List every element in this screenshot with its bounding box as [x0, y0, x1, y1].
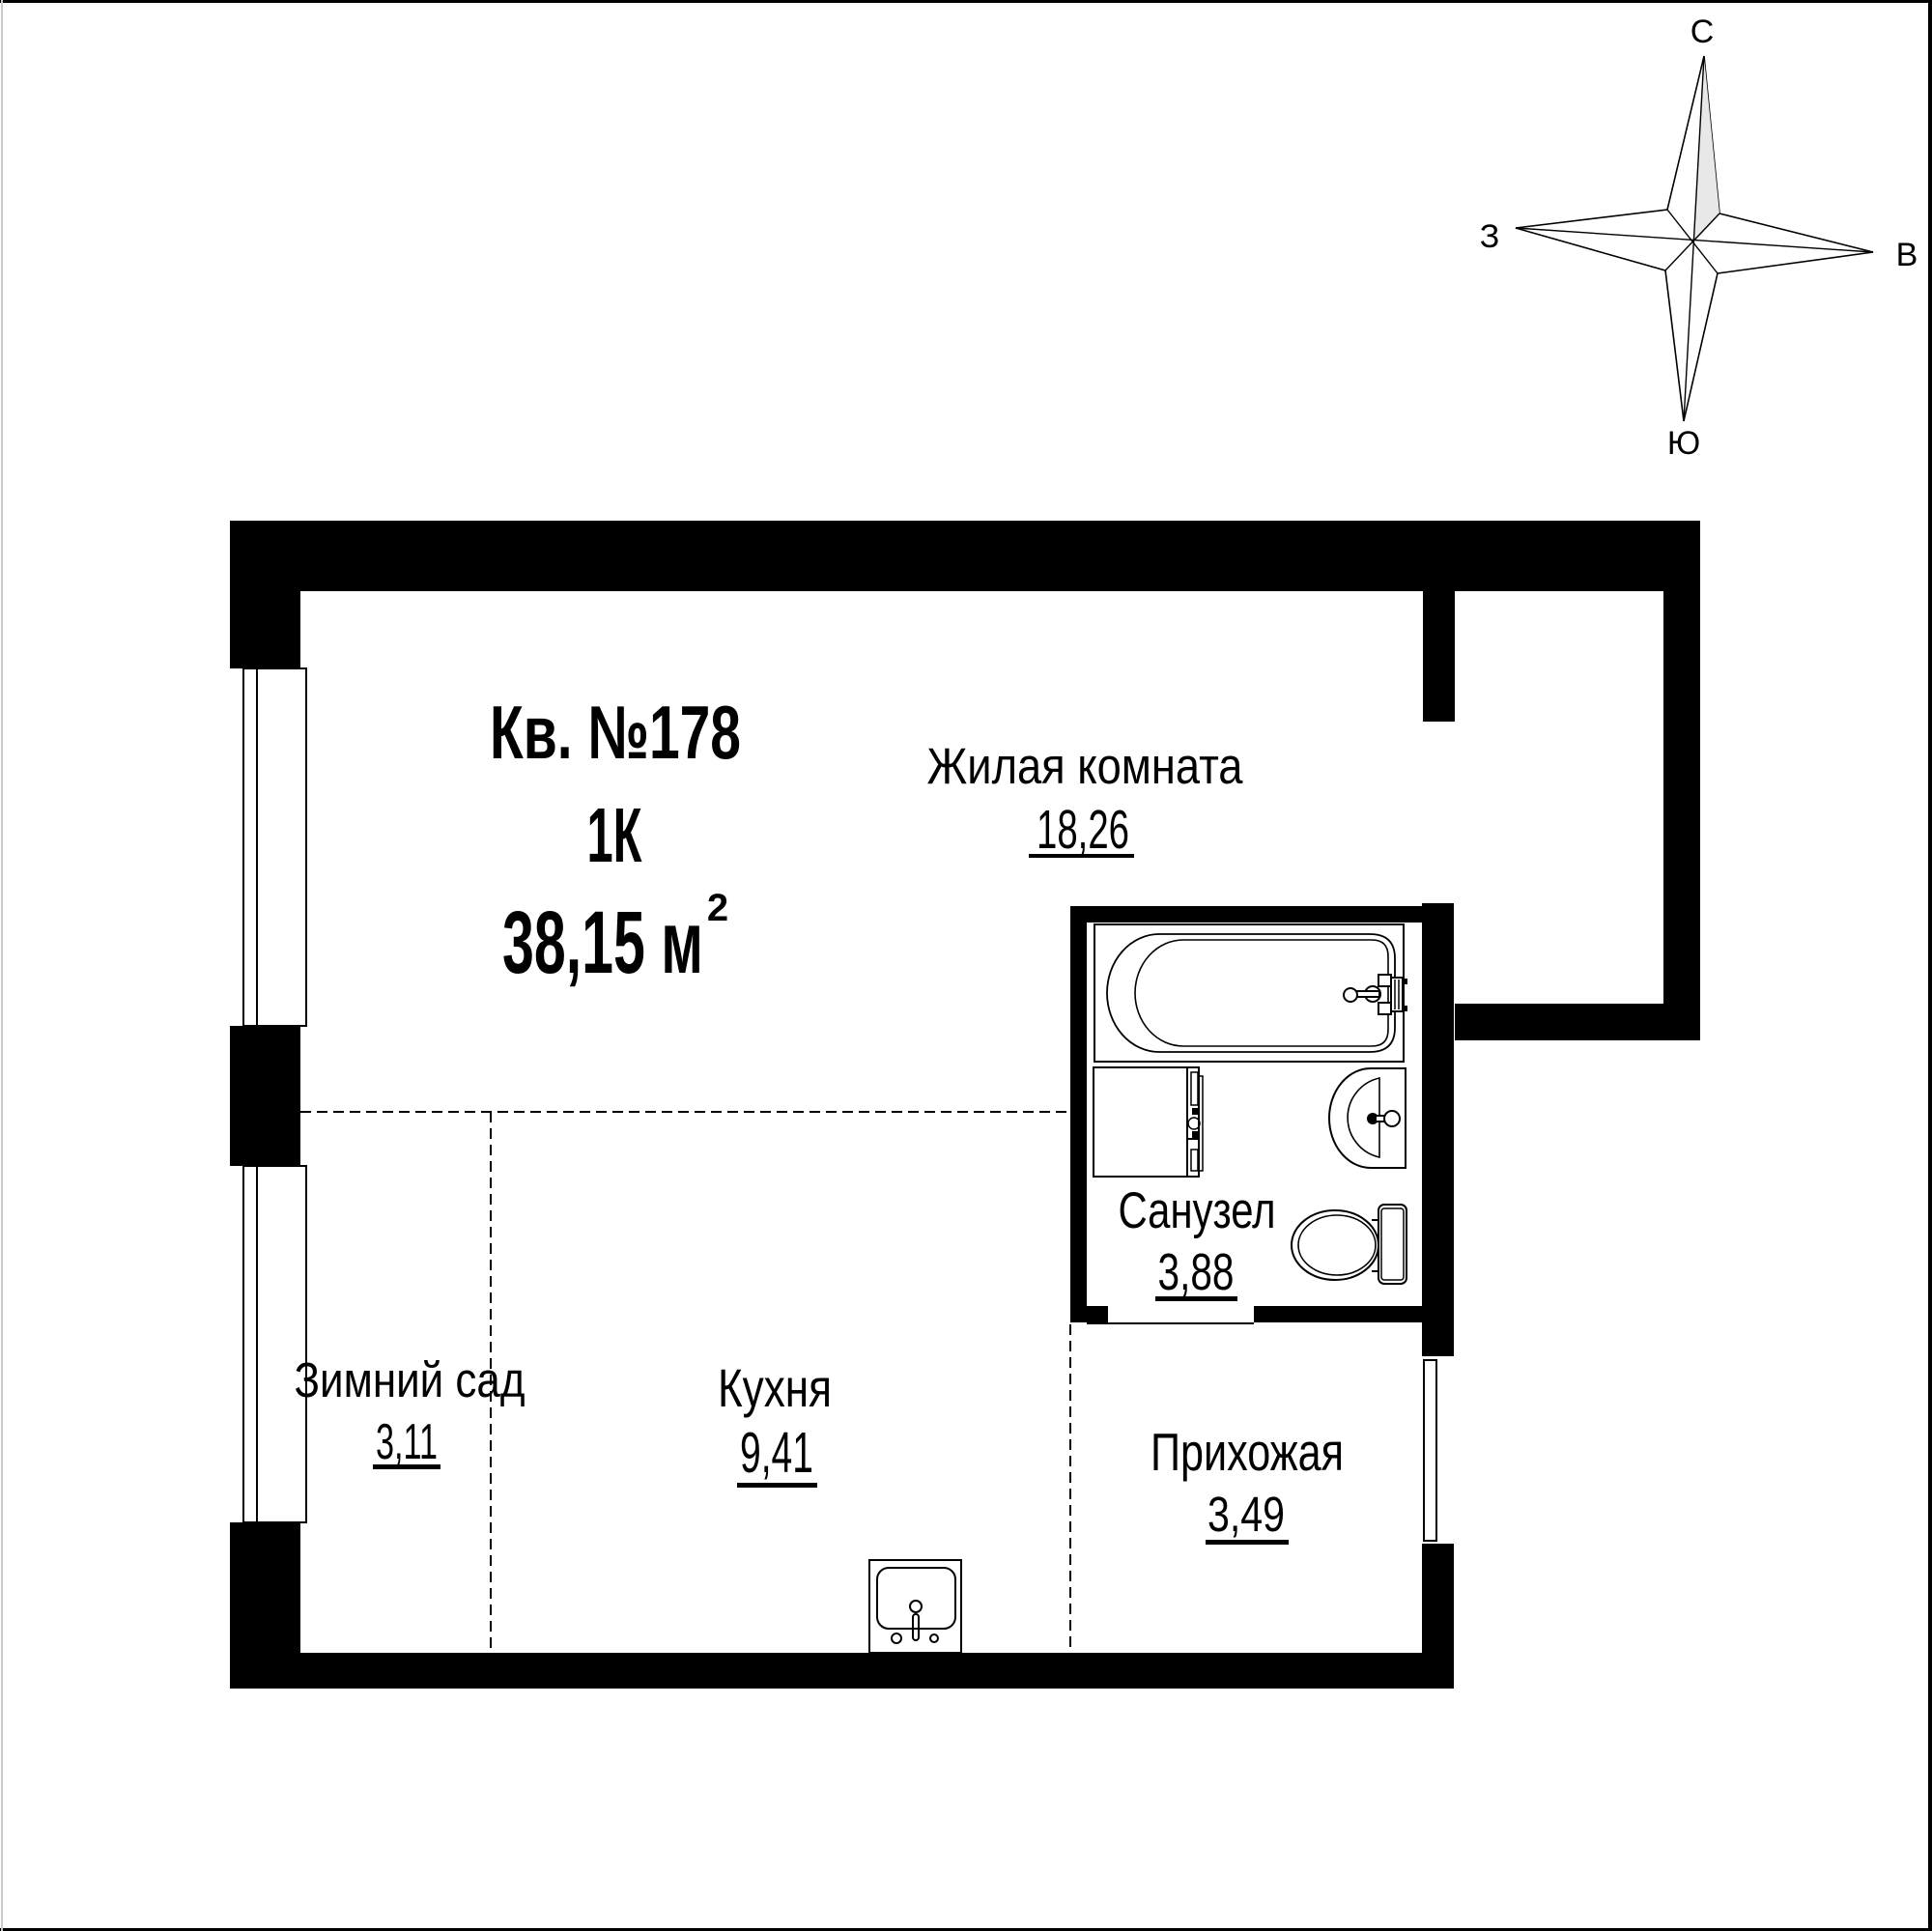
svg-text:Зимний сад: Зимний сад: [295, 1352, 526, 1407]
svg-text:Жилая комната: Жилая комната: [927, 738, 1243, 795]
svg-text:Кв. №178: Кв. №178: [490, 690, 741, 775]
svg-text:3,49: 3,49: [1207, 1487, 1285, 1542]
svg-text:З: З: [1480, 218, 1500, 255]
svg-text:В: В: [1896, 237, 1918, 273]
svg-text:Санузел: Санузел: [1119, 1182, 1276, 1239]
svg-text:2: 2: [707, 887, 728, 929]
svg-text:С: С: [1690, 14, 1715, 50]
svg-text:9,41: 9,41: [740, 1421, 813, 1485]
svg-text:1К: 1К: [587, 792, 642, 878]
svg-text:Ю: Ю: [1667, 425, 1700, 462]
svg-text:38,15 м: 38,15 м: [502, 894, 703, 992]
svg-text:Прихожая: Прихожая: [1151, 1422, 1344, 1482]
svg-text:3,88: 3,88: [1158, 1243, 1235, 1301]
svg-text:Кухня: Кухня: [718, 1357, 832, 1418]
svg-text:3,11: 3,11: [376, 1414, 438, 1470]
svg-text:18,26: 18,26: [1037, 799, 1129, 861]
